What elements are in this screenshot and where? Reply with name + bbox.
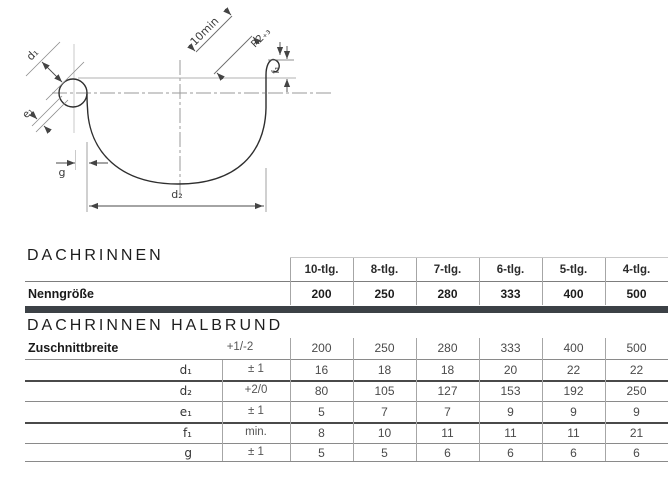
d1-value: 16: [290, 363, 353, 377]
dim-label-d2: d₂: [171, 188, 182, 201]
row-separator: [25, 380, 668, 382]
table-bottom-rule: [25, 461, 668, 462]
nenngroesse-label: Nenngröße: [28, 287, 94, 301]
zuschnittbreite-label: Zuschnittbreite: [28, 341, 118, 355]
zuschnitt-value: 200: [290, 341, 353, 355]
zuschnitt-value: 400: [542, 341, 605, 355]
d1-value: 22: [605, 363, 668, 377]
row-separator: [25, 359, 668, 360]
d1-ext-b: [46, 62, 84, 100]
d2-value: 127: [416, 384, 479, 398]
table-row-d1: d₁ ± 1 16 18 18 20 22 22: [0, 363, 670, 379]
row-label-d1: d₁: [120, 363, 192, 377]
divider: [222, 360, 223, 461]
section-title-halbrund: DACHRINNEN HALBRUND: [27, 317, 283, 335]
zuschnitt-value: 250: [353, 341, 416, 355]
d2-value: 80: [290, 384, 353, 398]
row-separator: [25, 443, 668, 444]
e1-value: 7: [416, 405, 479, 419]
d1-value: 18: [353, 363, 416, 377]
dim-label-d1: d₁: [24, 46, 41, 63]
f1-value: 11: [542, 426, 605, 440]
row-tolerance-d1: ± 1: [224, 363, 288, 375]
row-label-e1: e₁: [120, 405, 192, 419]
d1-value: 18: [416, 363, 479, 377]
row-separator: [25, 401, 668, 402]
col-header-6tlg: 6-tlg.: [479, 264, 542, 276]
nenngroesse-row: Nenngröße 200 250 280 333 400 500: [0, 287, 670, 305]
zuschnitt-value: 500: [605, 341, 668, 355]
nenngroesse-value: 250: [353, 287, 416, 301]
section-divider-bar: [25, 306, 668, 313]
nenngroesse-value: 333: [479, 287, 542, 301]
d1-value: 20: [479, 363, 542, 377]
e1-ext-a: [36, 100, 68, 132]
zuschnittbreite-row: Zuschnittbreite +1/-2 200 250 280 333 40…: [0, 341, 670, 358]
row-label-f1: f₁: [120, 426, 192, 440]
d2-value: 153: [479, 384, 542, 398]
row-tolerance-f1: min.: [224, 426, 288, 438]
divider: [353, 258, 354, 305]
row-separator: [25, 422, 668, 424]
g-value: 5: [290, 446, 353, 460]
zuschnitt-value: 333: [479, 341, 542, 355]
e1-value: 7: [353, 405, 416, 419]
f1-value: 8: [290, 426, 353, 440]
col-header-5tlg: 5-tlg.: [542, 264, 605, 276]
title-underline: [25, 281, 668, 282]
col-header-7tlg: 7-tlg.: [416, 264, 479, 276]
f1-value: 10: [353, 426, 416, 440]
g-value: 5: [353, 446, 416, 460]
d2-value: 250: [605, 384, 668, 398]
divider: [416, 258, 417, 305]
row-label-d2: d₂: [120, 384, 192, 398]
g-value: 6: [416, 446, 479, 460]
g-value: 6: [479, 446, 542, 460]
row-tolerance-g: ± 1: [224, 446, 288, 458]
gutter-cross-section-diagram: d₂ g d₁ e₁ 10min R2₊₃ f₁: [0, 0, 345, 240]
table-row-g: g ± 1 5 5 6 6 6 6: [0, 446, 670, 462]
g-value: 6: [542, 446, 605, 460]
dim-label-r2: R2₊₃: [249, 26, 273, 50]
divider: [605, 258, 606, 305]
dim-label-f1: f₁: [271, 66, 282, 74]
nenngroesse-value: 200: [290, 287, 353, 301]
d1-value: 22: [542, 363, 605, 377]
d2-value: 192: [542, 384, 605, 398]
d1-arrow-a: [42, 62, 52, 72]
g-value: 6: [605, 446, 668, 460]
f1-value: 21: [605, 426, 668, 440]
row-tolerance-d2: +2/0: [224, 384, 288, 396]
section-title-dachrinnen: DACHRINNEN: [27, 247, 164, 265]
zuschnitt-value: 280: [416, 341, 479, 355]
nenngroesse-value: 400: [542, 287, 605, 301]
divider: [542, 338, 543, 461]
dim-label-e1: e₁: [21, 106, 36, 121]
e1-value: 9: [479, 405, 542, 419]
dim-label-g: g: [59, 166, 66, 179]
divider: [479, 258, 480, 305]
f1-value: 11: [479, 426, 542, 440]
table-row-d2: d₂ +2/0 80 105 127 153 192 250: [0, 384, 670, 400]
col-header-4tlg: 4-tlg.: [605, 264, 668, 276]
divider: [605, 338, 606, 461]
min10-arrow-1: [225, 9, 231, 15]
row-label-g: g: [120, 446, 192, 460]
divider: [416, 338, 417, 461]
e1-arrow-b: [44, 126, 50, 132]
col-header-10tlg: 10-tlg.: [290, 264, 353, 276]
d2-value: 105: [353, 384, 416, 398]
datasheet-page: d₂ g d₁ e₁ 10min R2₊₃ f₁ DACHRI: [0, 0, 670, 491]
col-header-8tlg: 8-tlg.: [353, 264, 416, 276]
min10-ext-b: [214, 36, 252, 74]
e1-value: 9: [605, 405, 668, 419]
column-header-row: 10-tlg. 8-tlg. 7-tlg. 6-tlg. 5-tlg. 4-tl…: [0, 264, 670, 281]
nenngroesse-value: 280: [416, 287, 479, 301]
e1-value: 9: [542, 405, 605, 419]
divider: [290, 338, 291, 461]
d1-arrow-b: [52, 72, 62, 82]
divider: [353, 338, 354, 461]
table-row-e1: e₁ ± 1 5 7 7 9 9 9: [0, 405, 670, 421]
row-tolerance-e1: ± 1: [224, 405, 288, 417]
e1-value: 5: [290, 405, 353, 419]
table-row-f1: f₁ min. 8 10 11 11 11 21: [0, 426, 670, 442]
divider: [542, 258, 543, 305]
f1-value: 11: [416, 426, 479, 440]
nenngroesse-value: 500: [605, 287, 668, 301]
divider: [290, 258, 291, 305]
zuschnittbreite-tolerance: +1/-2: [200, 341, 280, 353]
divider: [479, 338, 480, 461]
